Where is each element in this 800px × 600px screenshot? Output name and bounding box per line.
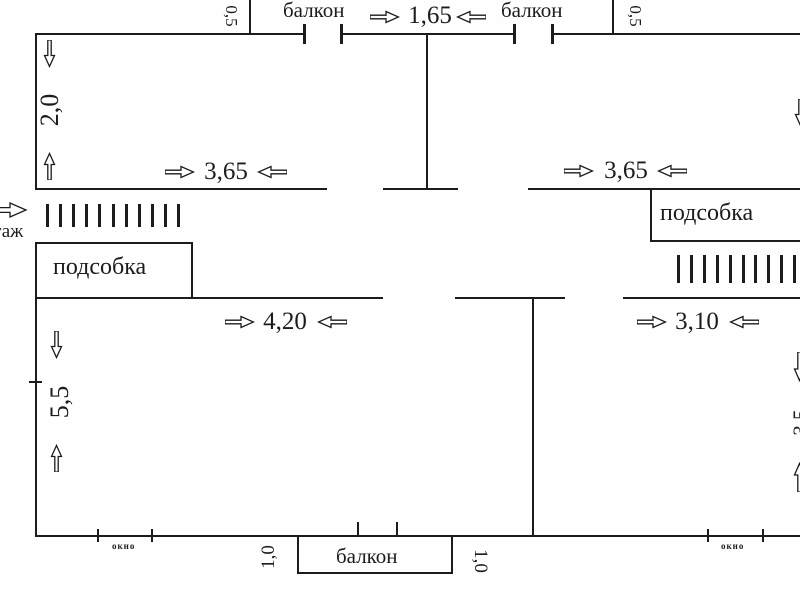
stair-hatch-bar — [138, 204, 141, 227]
window-tick — [707, 529, 709, 542]
bottom-balcony-rail-right — [451, 537, 453, 574]
dim-arrow-left-icon — [257, 165, 287, 179]
wall-top-rooms-divider — [426, 33, 428, 190]
floor-plan: балкон 1,65 балкон 0,5 0,5 2,0 3,65 3,65… — [0, 0, 800, 600]
dim-arrow-right-icon — [370, 10, 400, 24]
dim-bottom-left-room-height: 5,5 — [45, 382, 75, 422]
top-left-balcony-rail — [249, 0, 251, 33]
stair-hatch-bar — [703, 255, 706, 283]
wall-middle-segment-1 — [35, 188, 327, 190]
dim-balcony-gap: 1,65 — [404, 2, 456, 30]
stair-hatch-bar — [125, 204, 128, 227]
dim-bottom-left-room-width: 4,20 — [259, 308, 311, 336]
stair-hatch-bar — [59, 204, 62, 227]
balcony-door-jamb-tick — [551, 24, 554, 44]
wall-top-segment-2 — [342, 33, 515, 35]
balcony-label-bottom: балкон — [336, 544, 398, 569]
wall-bottom-rooms-divider — [532, 299, 534, 537]
balcony-label-top-right: балкон — [501, 0, 563, 23]
balcony-label-top-left: балкон — [283, 0, 345, 23]
balcony-door-jamb-tick — [513, 24, 516, 44]
utility-left-wall-top — [35, 242, 193, 244]
stair-hatch-bar — [177, 204, 180, 227]
wall-middle-segment-2 — [383, 188, 458, 190]
utility-right-wall-left — [650, 188, 652, 242]
wall-lower-segment-2 — [455, 297, 565, 299]
dim-arrow-up-icon — [43, 152, 56, 180]
utility-label-right: подсобка — [660, 200, 753, 227]
utility-right-wall-bottom — [650, 240, 800, 242]
stair-hatch-bar — [767, 255, 770, 283]
dimension-tick — [29, 381, 42, 383]
window-tick — [151, 529, 153, 542]
wall-middle-segment-3 — [528, 188, 800, 190]
entrance-arrow-icon — [0, 201, 28, 219]
wall-lower-segment-1 — [35, 297, 383, 299]
dim-arrow-right-icon — [637, 315, 667, 329]
dim-balcony-offset-left: 1,0 — [258, 539, 280, 575]
wall-left-lower — [35, 242, 37, 537]
dim-bottom-right-room-height: 3,5 — [789, 405, 800, 441]
dim-arrow-right-icon — [564, 164, 594, 178]
stair-hatch-bar — [98, 204, 101, 227]
stair-hatch-bar — [742, 255, 745, 283]
dim-top-left-room-width: 3,65 — [200, 158, 252, 186]
dim-arrow-down-icon — [50, 331, 63, 359]
stair-hatch-bar — [112, 204, 115, 227]
dim-arrow-right-icon — [165, 165, 195, 179]
window-label-right: окно — [721, 541, 744, 551]
dim-arrow-left-icon — [657, 164, 687, 178]
stair-hatch-bar — [729, 255, 732, 283]
stair-hatch-bar — [780, 255, 783, 283]
utility-label-left: подсобка — [53, 254, 146, 281]
wall-top-segment-3 — [553, 33, 800, 35]
dim-arrow-left-icon — [456, 10, 486, 24]
dim-balcony-offset-right: 1,0 — [469, 543, 491, 579]
wall-lower-segment-3 — [623, 297, 800, 299]
dim-arrow-up-icon — [50, 444, 63, 472]
dim-arrow-right-icon — [225, 315, 255, 329]
dim-top-right-room-width: 3,65 — [600, 157, 652, 185]
stair-hatch-bar — [85, 204, 88, 227]
dim-arrow-down-icon — [793, 352, 800, 382]
dim-balcony-depth-right: 0,5 — [625, 0, 645, 32]
floor-label: этаж — [0, 221, 23, 243]
wall-top-segment-1 — [35, 33, 305, 35]
stair-hatch-bar — [151, 204, 154, 227]
stair-hatch-bar — [793, 255, 796, 283]
wall-bottom — [35, 535, 800, 537]
dim-arrow-down-icon — [43, 40, 56, 68]
window-tick — [97, 529, 99, 542]
stair-hatch-bar — [690, 255, 693, 283]
stair-hatch-bar — [46, 204, 49, 227]
window-label-left: окно — [112, 541, 135, 551]
window-tick — [762, 529, 764, 542]
top-right-balcony-rail — [612, 0, 614, 33]
stair-hatch-bar — [677, 255, 680, 283]
stair-hatch-bar — [716, 255, 719, 283]
dim-bottom-right-room-width: 3,10 — [671, 308, 723, 336]
utility-left-wall-right — [191, 242, 193, 299]
bottom-balcony-rail-left — [297, 537, 299, 574]
balcony-door-jamb-tick — [340, 24, 343, 44]
stair-hatch-bar — [164, 204, 167, 227]
balcony-door-jamb-tick — [396, 522, 398, 536]
balcony-door-jamb-tick — [357, 522, 359, 536]
dim-arrow-left-icon — [317, 315, 347, 329]
dim-arrow-left-icon — [729, 315, 759, 329]
balcony-door-jamb-tick — [303, 24, 306, 44]
dim-arrow-down-icon — [794, 99, 800, 127]
stair-hatch-bar — [754, 255, 757, 283]
stair-hatch-bar — [72, 204, 75, 227]
dim-balcony-depth-left: 0,5 — [221, 0, 241, 32]
bottom-balcony-rail-front — [297, 572, 453, 574]
dim-top-left-room-height: 2,0 — [35, 90, 65, 130]
dim-arrow-up-icon — [793, 462, 800, 492]
